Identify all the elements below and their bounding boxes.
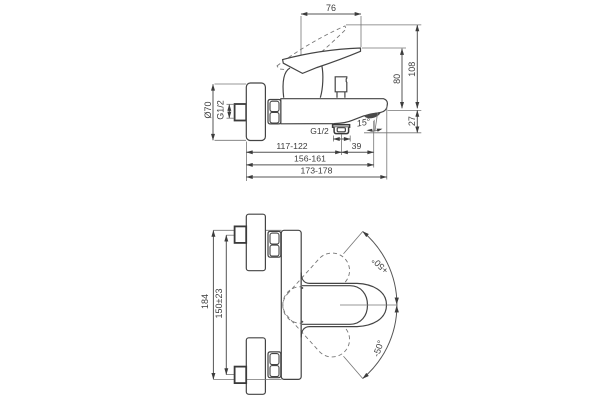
svg-text:150±23: 150±23: [214, 289, 224, 319]
svg-text:184: 184: [200, 294, 210, 309]
svg-text:39: 39: [352, 141, 362, 151]
svg-text:108: 108: [407, 62, 417, 77]
svg-text:80: 80: [392, 74, 402, 84]
svg-text:117-122: 117-122: [276, 141, 307, 151]
svg-text:G1/2: G1/2: [216, 100, 226, 120]
svg-text:G1/2: G1/2: [310, 126, 329, 136]
svg-text:156-161: 156-161: [294, 154, 326, 164]
svg-text:27: 27: [407, 116, 417, 126]
svg-text:Ø70: Ø70: [203, 101, 213, 118]
svg-text:173-178: 173-178: [301, 166, 333, 176]
svg-text:76: 76: [326, 3, 336, 13]
